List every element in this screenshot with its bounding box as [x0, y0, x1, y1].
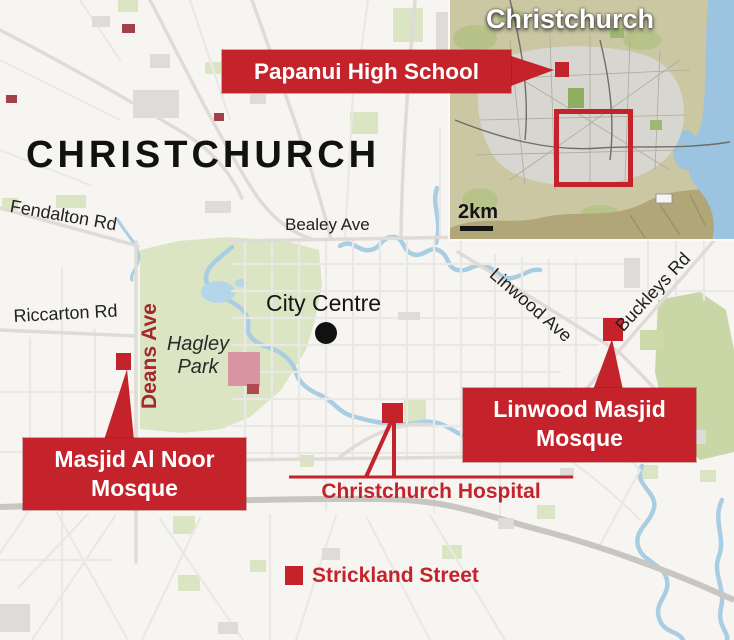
- inset-hagley-park: [568, 88, 584, 108]
- hagley-pond: [201, 281, 235, 303]
- strickland-marker: [285, 566, 303, 585]
- inset-scale-bar: [460, 226, 493, 231]
- al-noor-label-line1: Masjid Al Noor: [23, 445, 246, 474]
- inset-highlight-rect: [554, 109, 633, 187]
- inset-title: Christchurch: [486, 4, 654, 35]
- strickland-label: Strickland Street: [312, 564, 479, 588]
- linwood-callout-box: Linwood Masjid Mosque: [463, 388, 696, 462]
- christchurch-attack-map: Christchurch 2km CHRISTCHURCH Fendalton …: [0, 0, 734, 640]
- hospital-label: Christchurch Hospital: [288, 480, 574, 504]
- inset-highway-shield: [656, 194, 672, 203]
- papanui-callout-box: Papanui High School: [222, 50, 511, 93]
- papanui-marker: [555, 62, 569, 77]
- al-noor-callout-box: Masjid Al Noor Mosque: [23, 438, 246, 510]
- hagley-park-label: Hagley Park: [155, 333, 241, 379]
- hospital-marker: [382, 403, 403, 423]
- city-centre-dot: [315, 322, 337, 344]
- inset-locator-map: Christchurch 2km: [448, 0, 734, 241]
- city-centre-label: City Centre: [266, 290, 381, 317]
- map-title: CHRISTCHURCH: [26, 134, 380, 177]
- inset-scale-label: 2km: [458, 201, 498, 224]
- hagley-park-label-line1: Hagley: [155, 333, 241, 356]
- linwood-label-line2: Mosque: [463, 424, 696, 453]
- al-noor-label-line2: Mosque: [23, 474, 246, 503]
- street-label-bealey: Bealey Ave: [285, 215, 370, 235]
- hagley-park-label-line2: Park: [155, 356, 241, 379]
- al-noor-marker: [116, 353, 131, 370]
- linwood-label-line1: Linwood Masjid: [463, 395, 696, 424]
